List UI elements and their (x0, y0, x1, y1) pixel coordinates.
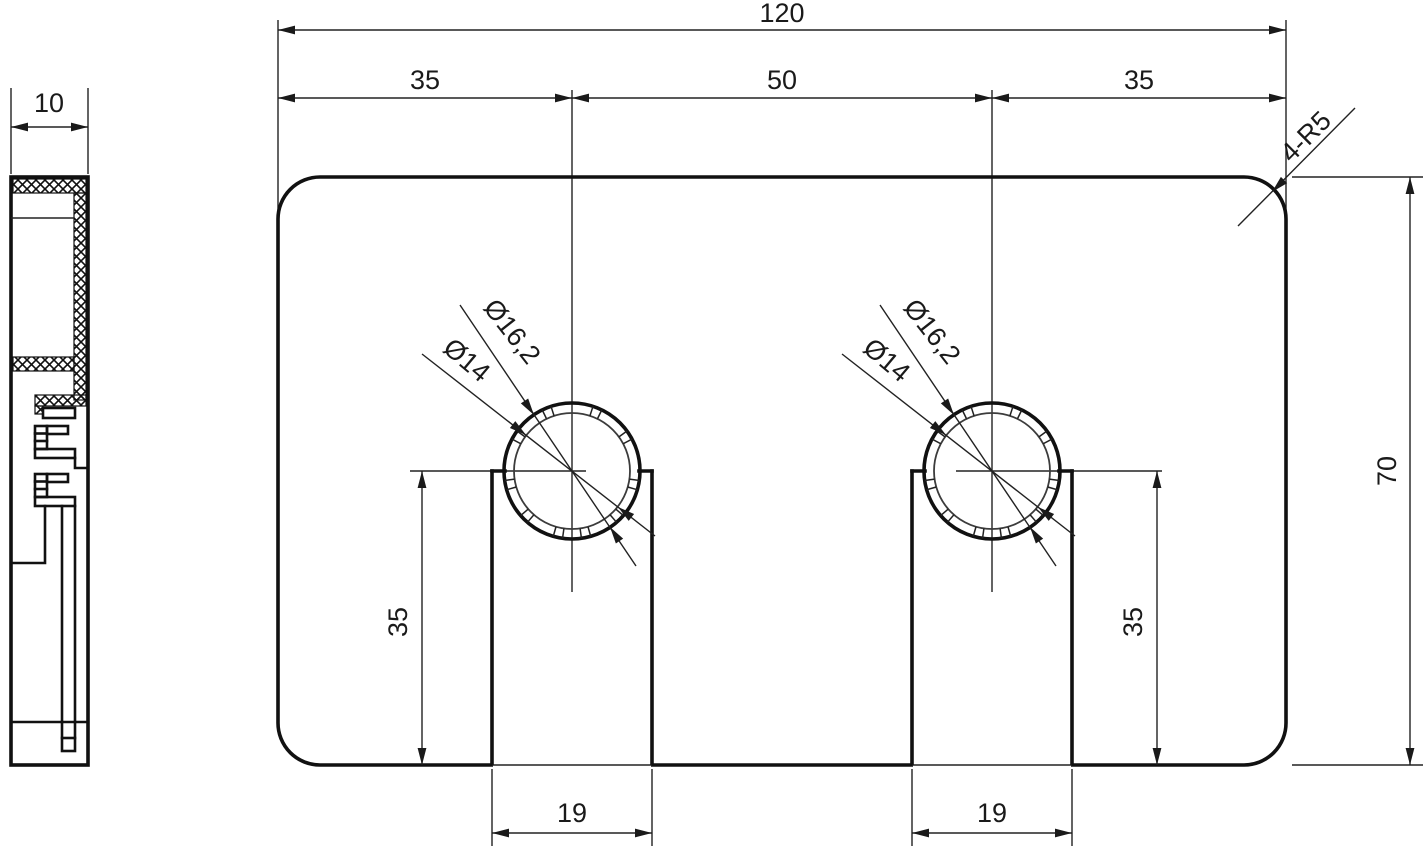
dim-overall-height: 70 (1372, 177, 1414, 765)
hatch-mid-band (13, 357, 74, 371)
dim-slot-depth-right: 35 (1118, 471, 1161, 765)
dim-overall-height-label: 70 (1372, 456, 1402, 486)
dim-slot-width-right: 19 (912, 798, 1072, 837)
hatch-top-band (13, 179, 86, 193)
dim-slot-depth-left: 35 (383, 471, 426, 765)
dim-overall-width: 120 (278, 0, 1286, 34)
front-view: Ø16,2 Ø14 Ø16,2 Ø14 120 35 50 35 4-R5 (278, 0, 1423, 846)
side-view-clip-profile (11, 408, 88, 751)
dim-hole-positions: 35 50 35 (278, 65, 1286, 102)
engineering-drawing-canvas: 10 (0, 0, 1423, 850)
dim-hole-left-inner-label: Ø14 (438, 332, 496, 388)
dim-slot-depth-left-label: 35 (383, 607, 413, 637)
side-section-view: 10 (11, 88, 88, 765)
dim-left-offset-label: 35 (410, 65, 440, 95)
dim-slot-width-left: 19 (492, 798, 652, 837)
drawing-svg: 10 (0, 0, 1423, 850)
dim-overall-width-label: 120 (759, 0, 804, 28)
dim-thickness-label: 10 (34, 88, 64, 118)
hatch-right-strip (74, 193, 86, 400)
dim-slot-depth-right-label: 35 (1118, 607, 1148, 637)
hole-serration-ticks (505, 406, 1060, 538)
dim-center-spacing-label: 50 (767, 65, 797, 95)
extension-lines (278, 20, 1423, 846)
dim-right-offset-label: 35 (1124, 65, 1154, 95)
dim-slot-width-right-label: 19 (977, 798, 1007, 828)
dim-slot-width-left-label: 19 (557, 798, 587, 828)
hatch-lower-band (35, 395, 86, 406)
dim-corner-radius: 4-R5 (1238, 105, 1355, 226)
dim-thickness: 10 (11, 88, 88, 174)
dim-hole-right-inner-label: Ø14 (858, 332, 916, 388)
